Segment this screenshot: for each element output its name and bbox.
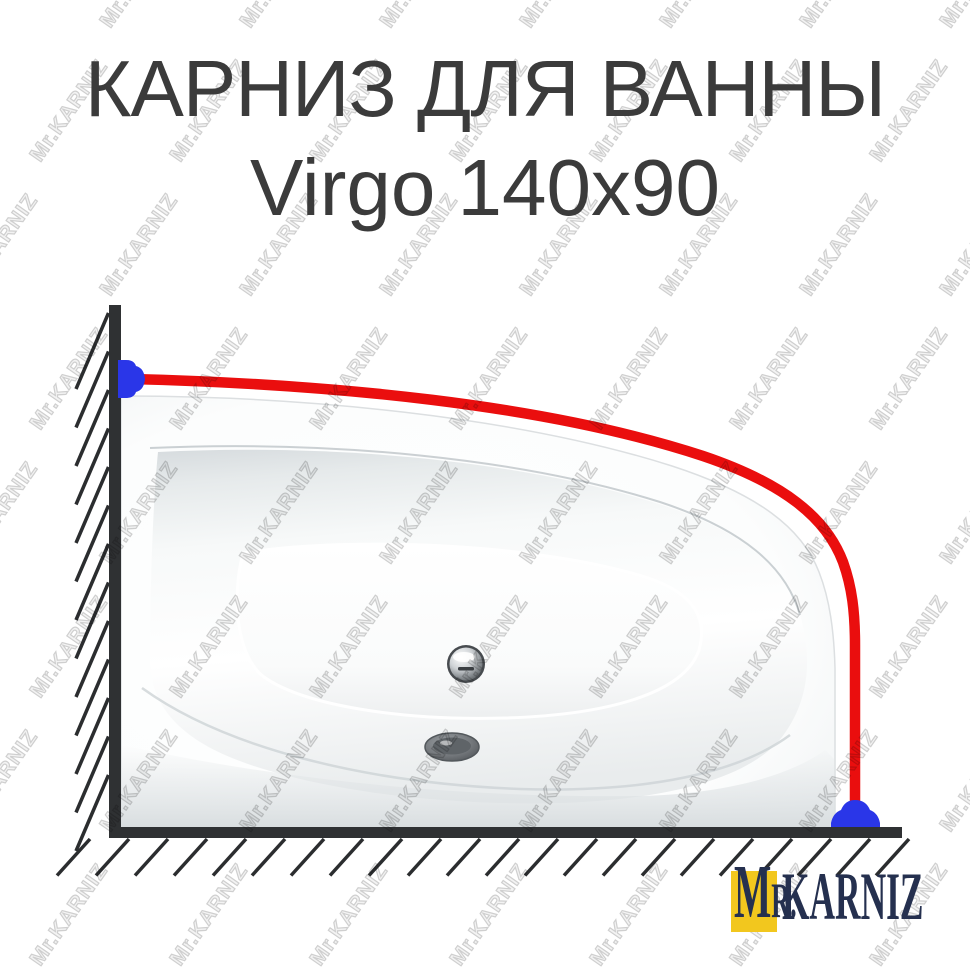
wall-bracket-left [118, 360, 145, 398]
logo-karniz-text: KARNIZ [782, 862, 923, 930]
title-line2: Virgo 140x90 [0, 148, 970, 228]
title-line1: КАРНИЗ ДЛЯ ВАННЫ [0, 49, 970, 129]
bottom-wall [109, 827, 902, 838]
waste-drain [425, 733, 479, 761]
product-image: Mr.KARNIZMr.KARNIZMr.KARNIZMr.KARNIZMr.K… [0, 0, 970, 970]
brand-logo: MR. KARNIZ [731, 871, 901, 935]
overflow-drain [447, 645, 485, 683]
wall-bracket-bottom [831, 800, 880, 827]
wall-hatching-left [76, 313, 109, 851]
